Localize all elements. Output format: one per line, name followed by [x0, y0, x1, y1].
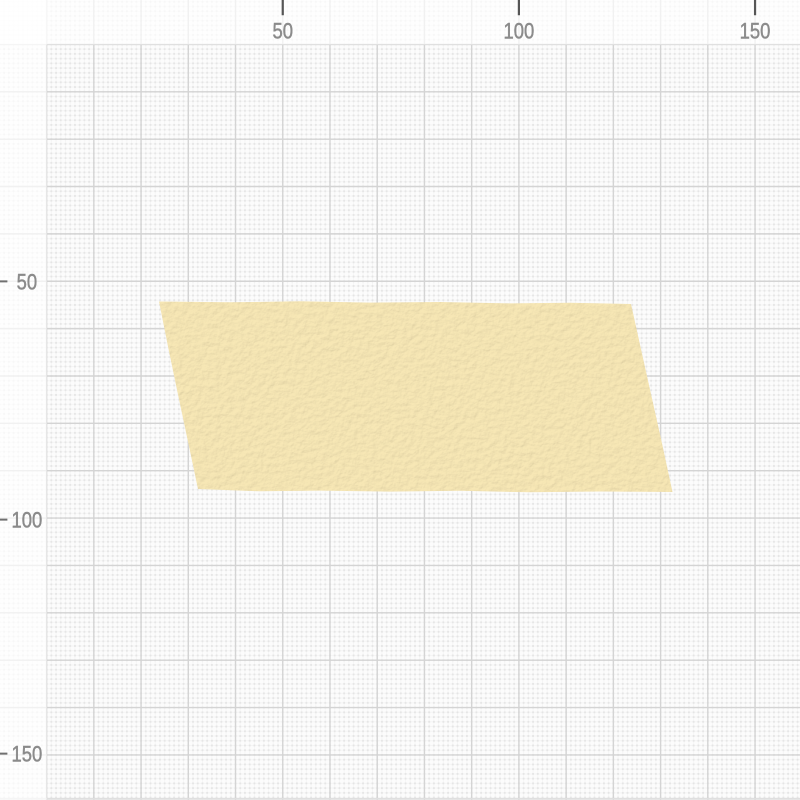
- svg-text:100: 100: [504, 19, 535, 44]
- svg-text:150: 150: [12, 742, 43, 767]
- svg-text:150: 150: [740, 19, 771, 44]
- svg-text:50: 50: [272, 19, 293, 44]
- svg-text:100: 100: [12, 508, 43, 533]
- svg-text:50: 50: [17, 270, 38, 295]
